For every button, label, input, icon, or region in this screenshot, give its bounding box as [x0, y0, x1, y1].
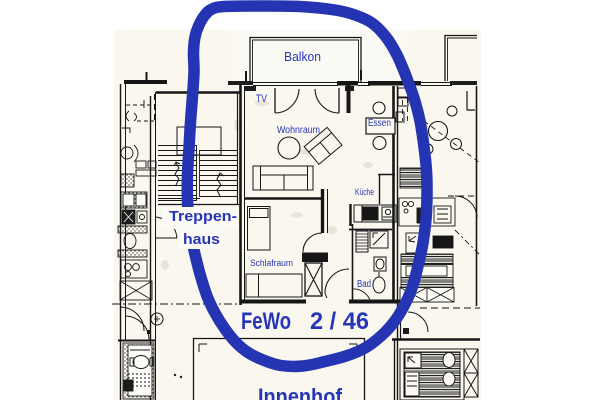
svg-text:Bad: Bad — [357, 279, 371, 290]
svg-text:Innenhof: Innenhof — [258, 384, 343, 400]
svg-text:Treppen-: Treppen- — [169, 208, 237, 225]
svg-text:Schlafraum: Schlafraum — [250, 258, 293, 268]
svg-text:2 / 46: 2 / 46 — [310, 308, 369, 335]
svg-text:Balkon: Balkon — [284, 49, 321, 64]
svg-text:FeWo: FeWo — [241, 308, 291, 335]
svg-text:haus: haus — [183, 231, 220, 248]
svg-text:Wohnraum: Wohnraum — [277, 124, 320, 136]
svg-text:Essen: Essen — [368, 118, 391, 129]
svg-text:Küche: Küche — [355, 187, 374, 198]
svg-text:TV: TV — [256, 93, 268, 105]
